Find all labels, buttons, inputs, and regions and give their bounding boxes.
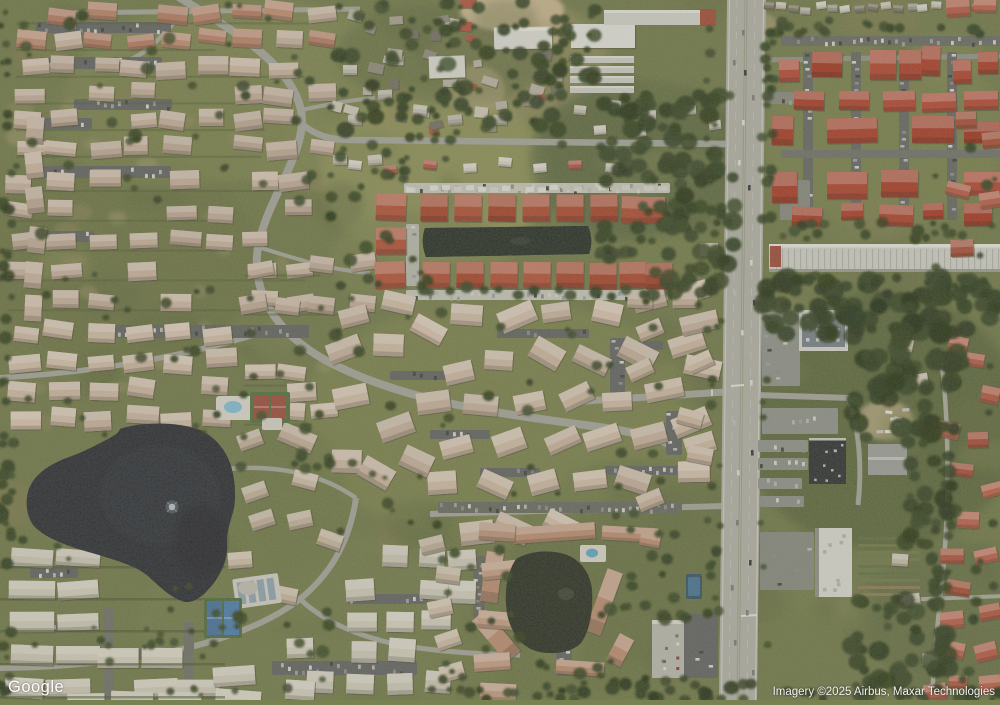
svg-text:Google: Google <box>8 678 64 696</box>
svg-text:Imagery ©2025 Airbus, Maxar Te: Imagery ©2025 Airbus, Maxar Technologies <box>773 686 996 698</box>
